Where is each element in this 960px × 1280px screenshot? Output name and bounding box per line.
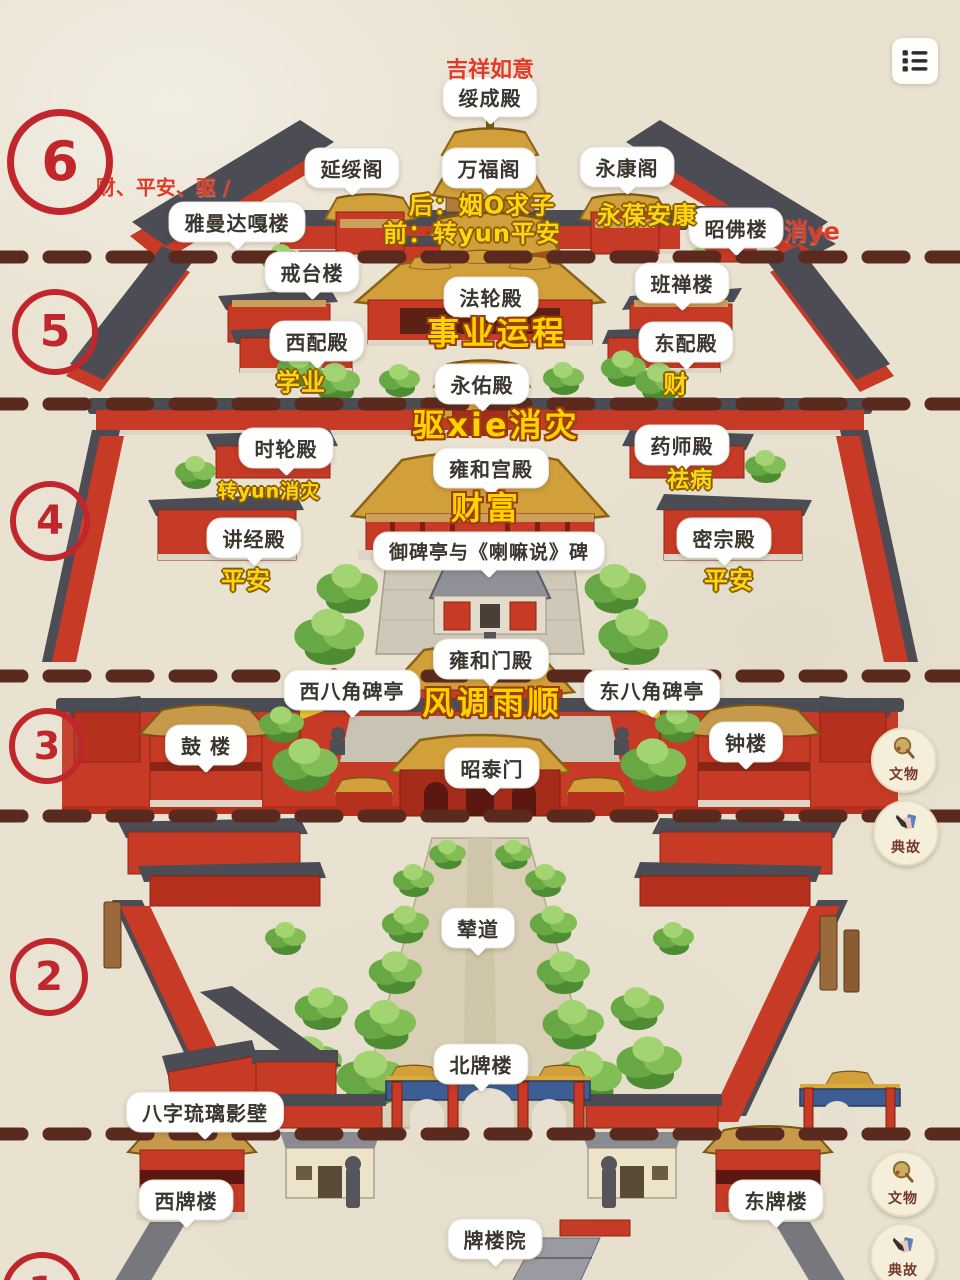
- keyword-annotation: 永葆安康: [597, 196, 697, 231]
- keyword-annotation: 平安: [221, 561, 271, 596]
- info-badge: 典故: [870, 1223, 936, 1280]
- label-bubble: 戒台楼: [265, 252, 360, 293]
- section-number-4: 4: [10, 481, 90, 561]
- keyword-annotation: 驱xie消灾: [412, 400, 579, 446]
- label-bubble: 牌楼院: [448, 1219, 543, 1260]
- keyword-annotation: 学业: [276, 363, 326, 398]
- badge-label: 文物: [889, 764, 919, 784]
- keyword-annotation: 平安: [704, 561, 754, 596]
- brush-icon: [893, 809, 920, 840]
- section-number-6: 6: [7, 109, 113, 215]
- section-number-2: 2: [10, 938, 88, 1016]
- mirror-icon: [891, 736, 918, 767]
- keyword-annotation: 转yun消灾: [218, 477, 320, 504]
- label-bubble: 东配殿: [639, 322, 734, 363]
- section-number-1: 1: [2, 1252, 82, 1280]
- info-badge: 典故: [873, 800, 939, 866]
- label-bubble: 东牌楼: [729, 1180, 824, 1221]
- keyword-annotation: 财富: [451, 483, 521, 529]
- label-overlay: 绥成殿延绥阁万福阁永康阁雅曼达嘎楼昭佛楼戒台楼班禅楼法轮殿西配殿东配殿永佑殿时轮…: [0, 0, 960, 1280]
- label-bubble: 西配殿: [270, 321, 365, 362]
- label-bubble: 御碑亭与《喇嘛说》碑: [373, 532, 605, 571]
- keyword-annotation: 财: [664, 365, 689, 400]
- label-bubble: 密宗殿: [677, 518, 772, 559]
- keyword-annotation: 祛病: [667, 462, 713, 494]
- keyword-annotation: 吉祥如意: [446, 52, 534, 84]
- label-bubble: 班禅楼: [635, 263, 730, 304]
- label-bubble: 鼓 楼: [165, 725, 247, 766]
- label-bubble: 永佑殿: [435, 364, 530, 405]
- label-bubble: 雅曼达嘎楼: [169, 202, 306, 243]
- section-number-3: 3: [9, 708, 85, 784]
- badge-label: 典故: [888, 1260, 918, 1280]
- keyword-annotation: 财、平安、驱 /: [96, 172, 230, 201]
- label-bubble: 八字琉璃影壁: [126, 1092, 284, 1133]
- section-number-5: 5: [12, 289, 98, 375]
- label-bubble: 昭佛楼: [689, 208, 784, 249]
- keyword-annotation: 消ye: [784, 212, 840, 247]
- label-bubble: 辇道: [441, 908, 515, 949]
- label-bubble: 时轮殿: [239, 428, 334, 469]
- label-bubble: 昭泰门: [445, 748, 540, 789]
- info-badge: 文物: [871, 727, 937, 793]
- label-bubble: 延绥阁: [305, 148, 400, 189]
- label-bubble: 西八角碑亭: [284, 670, 421, 711]
- keyword-annotation: 风调雨顺: [422, 678, 562, 724]
- label-bubble: 北牌楼: [434, 1044, 529, 1085]
- label-bubble: 西牌楼: [139, 1180, 234, 1221]
- badge-label: 文物: [888, 1188, 918, 1208]
- label-bubble: 东八角碑亭: [584, 670, 721, 711]
- label-bubble: 钟楼: [709, 722, 783, 763]
- keyword-annotation: 事业运程: [427, 308, 567, 354]
- mirror-icon: [890, 1160, 917, 1191]
- label-bubble: 雍和门殿: [433, 639, 549, 680]
- list-icon: [899, 44, 931, 79]
- keyword-annotation: 前：转yun平安: [383, 214, 561, 249]
- info-badge: 文物: [870, 1151, 936, 1217]
- label-bubble: 药师殿: [635, 425, 730, 466]
- brush-icon: [890, 1232, 917, 1263]
- label-bubble: 万福阁: [442, 148, 537, 189]
- label-bubble: 讲经殿: [207, 518, 302, 559]
- menu-button[interactable]: [892, 38, 938, 84]
- badge-label: 典故: [891, 837, 921, 857]
- label-bubble: 永康阁: [580, 147, 675, 188]
- yonghe-temple-map: 绥成殿延绥阁万福阁永康阁雅曼达嘎楼昭佛楼戒台楼班禅楼法轮殿西配殿东配殿永佑殿时轮…: [0, 0, 960, 1280]
